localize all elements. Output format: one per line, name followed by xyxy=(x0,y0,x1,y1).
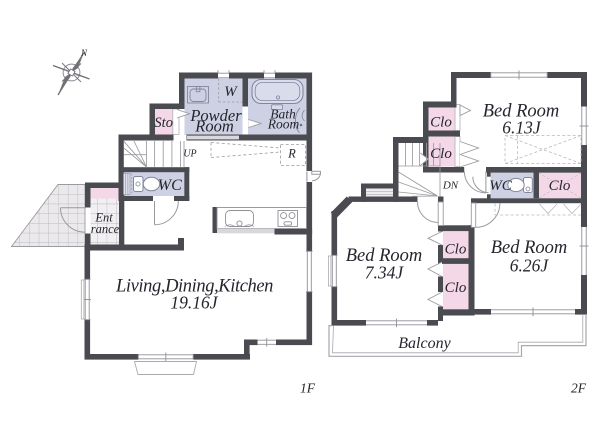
svg-text:WC: WC xyxy=(158,177,182,194)
svg-text:7.34J: 7.34J xyxy=(365,263,405,283)
svg-text:Clo: Clo xyxy=(445,280,467,296)
svg-text:Sto: Sto xyxy=(154,115,173,131)
svg-text:Room: Room xyxy=(267,117,300,132)
svg-text:19.16J: 19.16J xyxy=(170,293,218,313)
svg-text:Clo: Clo xyxy=(445,242,467,258)
svg-text:1F: 1F xyxy=(300,380,316,395)
svg-text:N: N xyxy=(80,48,88,58)
svg-text:2F: 2F xyxy=(571,380,587,395)
svg-text:Clo: Clo xyxy=(430,146,452,162)
svg-text:6.13J: 6.13J xyxy=(502,118,542,138)
svg-text:Room: Room xyxy=(194,117,234,136)
svg-text:6.26J: 6.26J xyxy=(510,256,550,276)
svg-text:Clo: Clo xyxy=(549,178,571,194)
svg-text:R: R xyxy=(287,147,296,161)
svg-text:Clo: Clo xyxy=(430,115,452,131)
svg-text:Balcony: Balcony xyxy=(398,335,451,352)
svg-text:WC: WC xyxy=(489,178,512,194)
svg-text:W: W xyxy=(224,84,238,100)
svg-text:rance: rance xyxy=(91,222,120,236)
svg-text:DN: DN xyxy=(442,180,459,192)
svg-text:UP: UP xyxy=(183,149,196,160)
